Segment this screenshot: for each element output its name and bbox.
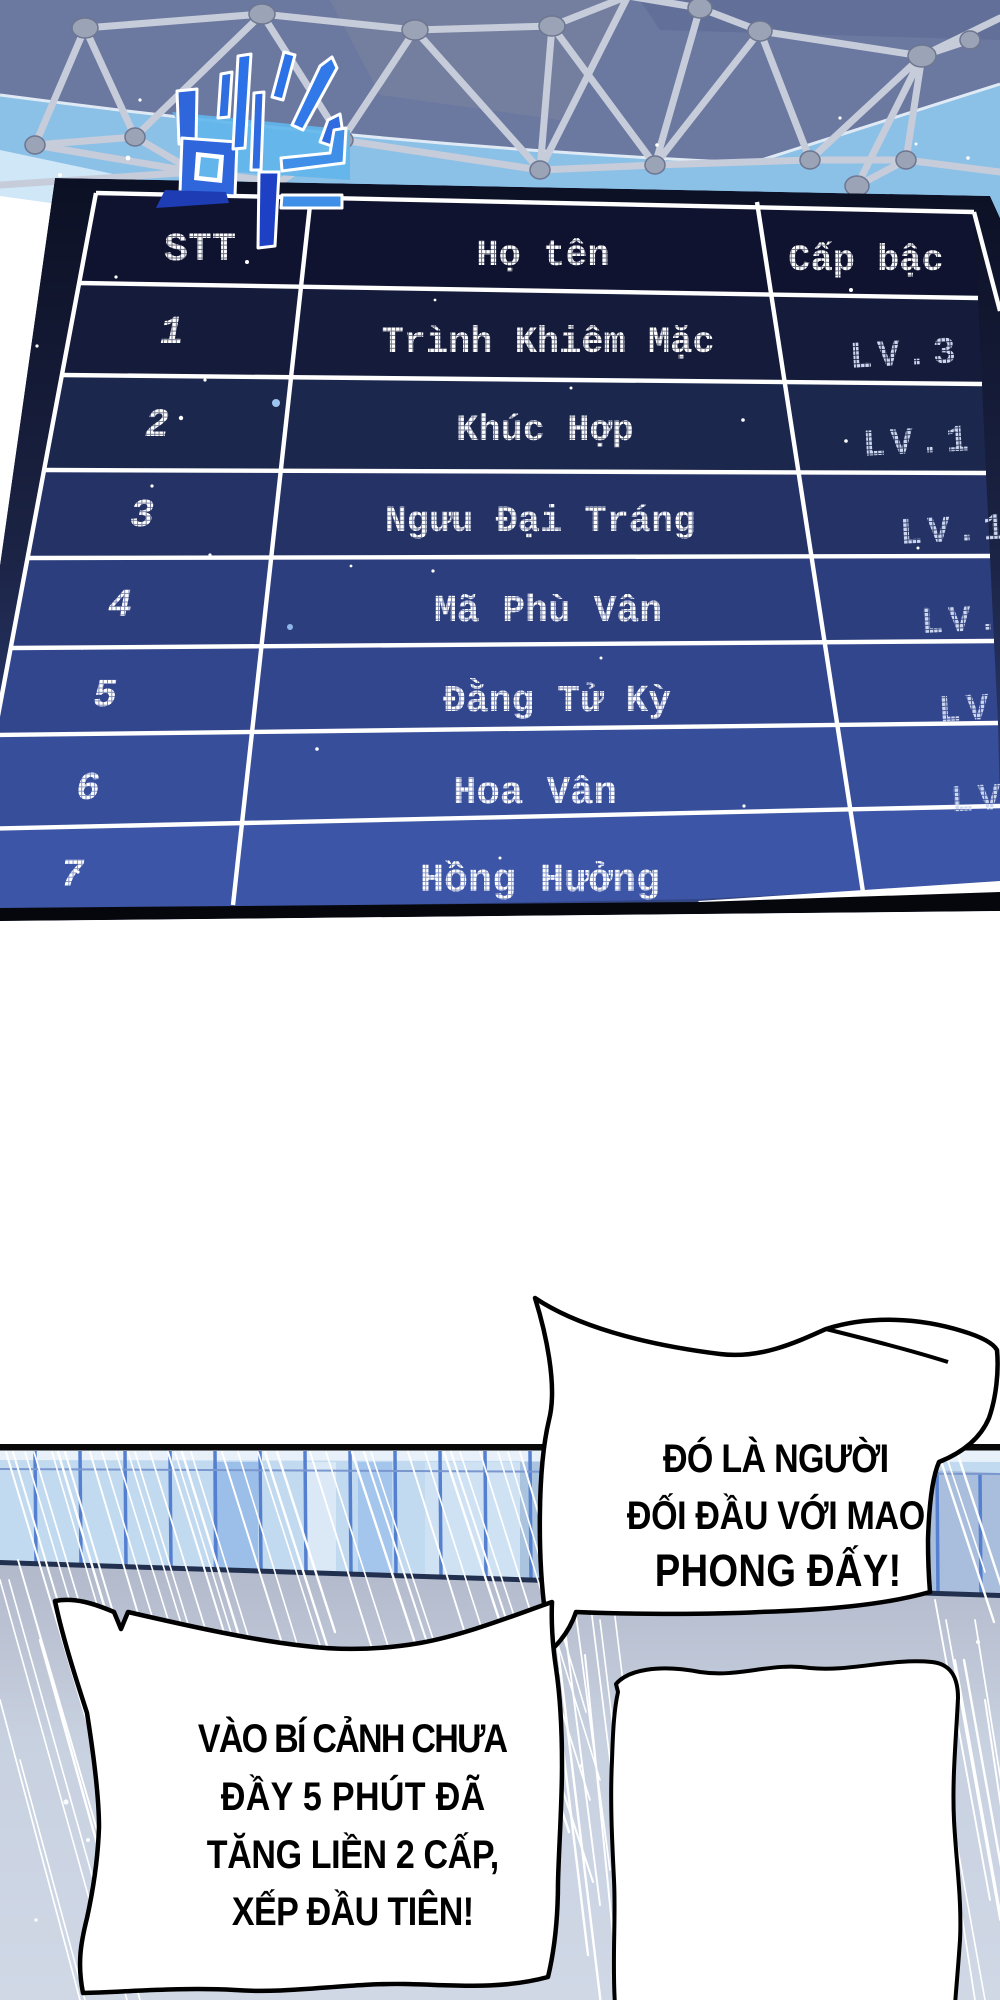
svg-text:Trình Khiêm Mặc: Trình Khiêm Mặc: [381, 322, 714, 364]
svg-text:LV: LV: [937, 688, 995, 734]
svg-text:VÀO BÍ CẢNH CHƯA: VÀO BÍ CẢNH CHƯA: [198, 1715, 508, 1760]
svg-text:LV.1: LV.1: [899, 507, 1000, 556]
svg-text:LV.1: LV.1: [862, 419, 975, 468]
svg-text:Họ tên: Họ tên: [476, 235, 609, 277]
svg-text:PHONG ĐẤY!: PHONG ĐẤY!: [655, 1545, 902, 1596]
svg-text:Cấp bậc: Cấp bậc: [788, 240, 943, 282]
svg-text:LV.3: LV.3: [849, 331, 962, 380]
svg-text:Ngưu Đại Tráng: Ngưu Đại Tráng: [385, 501, 696, 543]
svg-text:2: 2: [145, 404, 169, 449]
svg-text:Hoa Vân: Hoa Vân: [453, 771, 617, 815]
svg-text:4: 4: [108, 584, 132, 629]
svg-text:TĂNG LIỀN 2 CẤP,: TĂNG LIỀN 2 CẤP,: [207, 1831, 499, 1876]
svg-text:5: 5: [93, 674, 117, 719]
svg-text:Mã Phù Vân: Mã Phù Vân: [434, 590, 662, 633]
svg-text:Khúc Hợp: Khúc Hợp: [456, 410, 634, 452]
svg-text:ĐẦY 5 PHÚT ĐÃ: ĐẦY 5 PHÚT ĐÃ: [221, 1773, 485, 1818]
svg-text:LV: LV: [949, 778, 1000, 824]
svg-text:ĐÓ LÀ NGƯỜI: ĐÓ LÀ NGƯỜI: [663, 1435, 889, 1480]
svg-text:1: 1: [160, 311, 184, 356]
svg-text:ĐỐI ĐẦU VỚI MAO: ĐỐI ĐẦU VỚI MAO: [627, 1492, 925, 1537]
svg-text:7: 7: [60, 854, 85, 899]
svg-text:XẾP ĐẦU TIÊN!: XẾP ĐẦU TIÊN!: [232, 1888, 474, 1933]
svg-text:STT: STT: [164, 228, 236, 273]
svg-text:6: 6: [76, 767, 100, 812]
svg-text:Đằng Tử Kỳ: Đằng Tử Kỳ: [443, 676, 671, 723]
svg-text:Hồng Hưởng: Hồng Hưởng: [420, 859, 660, 904]
svg-text:3: 3: [130, 494, 154, 539]
svg-text:LV.: LV.: [919, 598, 1000, 645]
